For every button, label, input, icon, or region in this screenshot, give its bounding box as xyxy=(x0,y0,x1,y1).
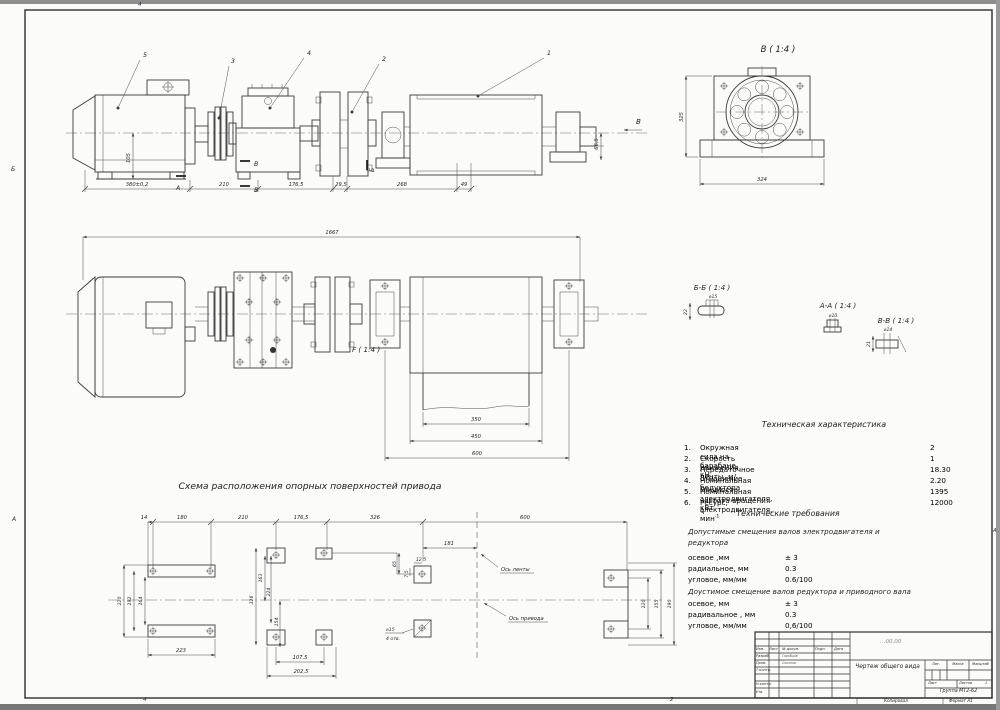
callouts xyxy=(117,58,544,119)
detail-f-label: F ( 1:4 ) xyxy=(352,345,380,354)
item-value: 1 xyxy=(930,454,935,463)
dim-label: 12,5 xyxy=(416,557,426,563)
dim-label: 326 xyxy=(249,596,255,605)
tb-row-razrab: Разраб. xyxy=(756,654,770,658)
zone-letter-b: Б xyxy=(11,166,15,173)
dim-label: 325 xyxy=(679,111,685,122)
dim-label: 154 xyxy=(274,618,280,627)
drum-supports-footprint: 120 155 190 xyxy=(604,563,677,645)
req-value: ± 3 xyxy=(785,553,798,562)
callout-1: 1 xyxy=(547,50,551,57)
dim-label: 202,5 xyxy=(294,669,310,675)
motor-plan xyxy=(78,277,195,397)
drum-plan xyxy=(410,277,542,410)
item-number: 1. xyxy=(684,443,691,452)
dim-label: 180 xyxy=(177,515,188,521)
dim-label: 120 xyxy=(641,600,647,609)
dim-label: 326 xyxy=(370,515,381,521)
tb-lit-label: Лит. xyxy=(925,662,947,666)
dim-label: 163 xyxy=(258,574,264,583)
item-number: 6. xyxy=(684,498,691,507)
dim-label: 324 xyxy=(757,177,767,183)
item-number: 4. xyxy=(684,476,691,485)
tb-col-izm: Изм. xyxy=(756,647,764,651)
dim-label: 21 xyxy=(866,341,872,347)
tech-reqs-heading2: Доустимое смещение валов редуктора и при… xyxy=(688,587,911,596)
hole-note-qty: 4 отв. xyxy=(386,636,400,642)
drawing-canvas: 66,5 В А В В Б 105 380±0,2 xyxy=(0,0,1000,710)
tb-row-tkontr: Т.контр. xyxy=(756,668,771,672)
dim-label: 350 xyxy=(471,417,482,423)
dim-label: 223 xyxy=(176,648,186,654)
section-mark-a: А xyxy=(175,185,180,192)
tb-drawing-title: Чертеж общего вида xyxy=(850,664,925,670)
item-value: 1395 xyxy=(930,487,948,496)
sheet-edge-right xyxy=(996,0,1000,710)
dim-label: 107,5 xyxy=(293,655,309,661)
tb-masshtab-label: Масштаб xyxy=(969,662,992,666)
item-value: 2 xyxy=(930,443,935,452)
gearbox-side xyxy=(229,84,318,179)
callout-3: 3 xyxy=(231,58,235,65)
coupling-drum-plan xyxy=(304,277,362,352)
dim-label: 66,5 xyxy=(594,138,600,150)
req-value: 0.3 xyxy=(785,564,796,573)
section-vv: В-В ( 1:4 ) ⌀14 21 xyxy=(866,316,914,354)
item-value: 18.30 xyxy=(930,465,951,474)
tb-row-prov: Пров. xyxy=(756,661,766,665)
section-mark-b: Б xyxy=(369,168,376,172)
drive-axis-label: Ось привода xyxy=(509,616,544,622)
dim-label: 600 xyxy=(472,451,483,457)
section-mark-v1: В xyxy=(254,161,258,168)
item-value: 2.20 xyxy=(930,476,946,485)
tb-doc-number: …00.00 xyxy=(880,639,901,645)
side-view: 66,5 В А В В Б 105 380±0,2 xyxy=(66,50,650,194)
dim-label: 450 xyxy=(471,434,482,440)
view-b-title: В ( 1:4 ) xyxy=(761,45,796,55)
zone-letter-a-right: А xyxy=(993,528,997,534)
tech-reqs-title: Технические требования xyxy=(688,509,888,518)
tb-row-nkontr: Н.контр. xyxy=(756,682,772,686)
section-bb: Б-Б ( 1:4 ) ⌀15 22 xyxy=(683,283,730,320)
support-scheme: 14 180 210 176,5 326 600 181 220 192 164… xyxy=(108,512,677,679)
zone-number-bottom-2: 2 xyxy=(670,697,674,703)
callout-4: 4 xyxy=(307,50,311,57)
dim-label: 600 xyxy=(520,515,531,521)
side-view-dims: 380±0,2 210 176,5 29,5 268 49 xyxy=(82,163,474,192)
belt-axis-label: Ось ленты xyxy=(501,567,530,573)
tb-list-label: Лист xyxy=(928,681,937,685)
drawing-sheet: 66,5 В А В В Б 105 380±0,2 xyxy=(0,0,1000,710)
drum-side xyxy=(410,95,542,175)
tb-kopiroval: Копировал xyxy=(884,698,908,703)
req-value: ± 3 xyxy=(785,599,798,608)
dim-label: 210 xyxy=(219,182,230,188)
dim-label: 268 xyxy=(397,182,408,188)
section-vv-title: В-В ( 1:4 ) xyxy=(878,316,915,325)
req-label: осевое, мм xyxy=(688,599,729,608)
zone-letter-a-left: А xyxy=(12,516,16,523)
tb-col-doc: № докум. xyxy=(782,647,799,651)
scheme-top-dims: 14 180 210 176,5 326 600 181 xyxy=(141,515,627,570)
hole-note-dia: ⌀15 xyxy=(386,627,395,633)
scheme-title: Схема расположения опорных поверхностей … xyxy=(150,481,470,492)
req-label: осевое ,мм xyxy=(688,553,729,562)
dim-label: 105 xyxy=(126,152,132,163)
section-aa: А-А ( 1:4 ) ⌀10 xyxy=(819,301,857,332)
motor-side xyxy=(73,80,208,179)
req-label: радивальное , мм xyxy=(688,610,755,619)
callout-2: 2 xyxy=(382,56,386,63)
dim-label: 14 xyxy=(141,515,148,521)
tb-col-data: Дата xyxy=(834,647,843,651)
view-b: В ( 1:4 ) 325 324 xyxy=(679,45,824,186)
dim-label: 22 xyxy=(683,309,689,315)
item-number: 5. xyxy=(684,487,691,496)
zone-number-bottom-4: 4 xyxy=(143,697,147,703)
dim-label: 29,5 xyxy=(335,182,347,188)
req-label: радиальное, мм xyxy=(688,564,749,573)
tb-massa-label: Масса xyxy=(947,662,969,666)
dim-label: ⌀14 xyxy=(884,327,893,333)
tb-col-podp: Подп. xyxy=(815,647,826,651)
tb-row-utv: Утв. xyxy=(756,690,763,694)
view-arrow-label: В xyxy=(636,117,641,126)
tb-listov-label: Листов xyxy=(959,681,972,685)
dim-label: 7,5 xyxy=(404,570,410,577)
req-value: 0.3 xyxy=(785,610,796,619)
dim-label: 65 xyxy=(392,561,398,567)
dim-label: 220 xyxy=(117,597,123,606)
axis-labels: Ось ленты Ось привода xyxy=(481,554,548,622)
gearbox-plan xyxy=(234,272,315,368)
req-label: угловое, мм/мм xyxy=(688,621,747,630)
bearing-left-side xyxy=(376,112,410,168)
dim-label: 380±0,2 xyxy=(126,182,149,188)
sheet-edge-top xyxy=(0,0,1000,4)
tb-name-prov: Соколов xyxy=(782,661,796,665)
dim-label: 224 xyxy=(266,588,272,597)
motor-footprint: 220 192 164 223 xyxy=(117,565,215,658)
gearbox-footprint: 326 163 224 154 107,5 202,5 xyxy=(249,548,336,679)
section-bb-title: Б-Б ( 1:4 ) xyxy=(694,283,731,292)
dim-label: 176,5 xyxy=(289,182,305,188)
tb-org: Группа МТ2-62 xyxy=(925,689,992,694)
plan-view-dims: 350 450 600 xyxy=(385,350,569,461)
tech-reqs-heading1: Допустимые смещения валов электродвигате… xyxy=(688,527,906,548)
item-number: 3. xyxy=(684,465,691,474)
req-value: 0.6/100 xyxy=(785,575,813,584)
sheet-edge-bottom xyxy=(0,704,1000,710)
plan-view: 1667 xyxy=(66,230,648,461)
item-number: 2. xyxy=(684,454,691,463)
tension-pads: 65 12,5 7,5 ⌀15 4 отв. xyxy=(332,553,431,642)
tb-listov-value: 1 xyxy=(985,681,987,685)
section-aa-title: А-А ( 1:4 ) xyxy=(819,301,857,310)
dim-label: 192 xyxy=(127,597,133,606)
tb-name-razrab: Горобцов xyxy=(782,654,798,658)
req-label: угловое, мм/мм xyxy=(688,575,747,584)
zone-number-top: 4 xyxy=(138,2,142,8)
dim-label: 210 xyxy=(238,515,249,521)
dim-label: 181 xyxy=(444,541,454,547)
bearing-right-side xyxy=(542,112,596,162)
req-value: 0,6/100 xyxy=(785,621,813,630)
dim-label: 164 xyxy=(138,597,144,606)
dim-label: 190 xyxy=(667,600,673,609)
dim-label: 176,5 xyxy=(294,515,310,521)
dim-label: 1667 xyxy=(325,230,339,236)
tech-chars-title: Техническая характеристика xyxy=(684,420,964,429)
dim-label: 49 xyxy=(461,182,468,188)
item-value: 12000 xyxy=(930,498,953,507)
dim-label: 155 xyxy=(654,600,660,609)
tb-format: Формат А1 xyxy=(949,698,973,703)
callout-5: 5 xyxy=(143,52,147,59)
tb-col-list: Лист xyxy=(769,647,778,651)
dim-label: ⌀15 xyxy=(709,294,718,300)
